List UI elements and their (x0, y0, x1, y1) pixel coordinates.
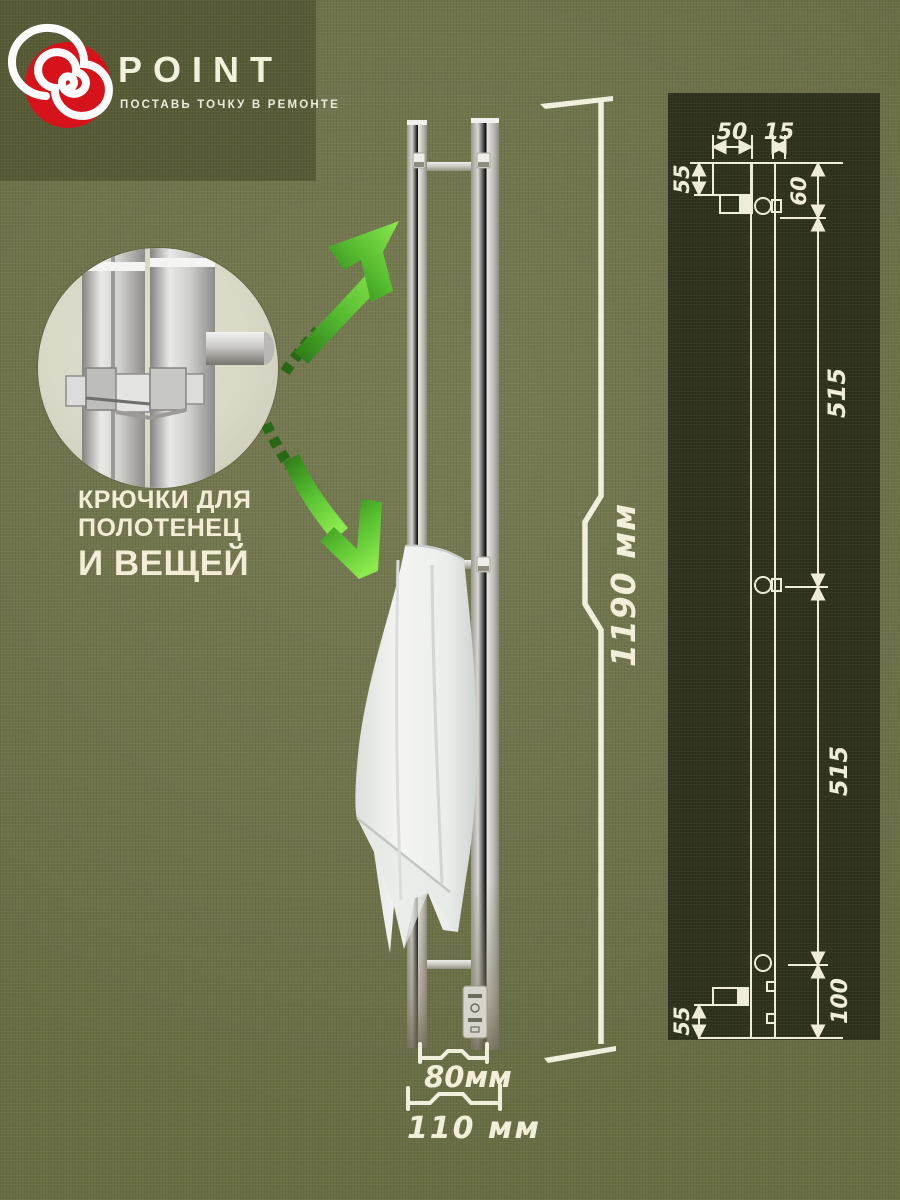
drawing-label-60: 60 (787, 176, 811, 205)
green-arrow-down-icon (266, 424, 382, 579)
callout-line1: КРЮЧКИ ДЛЯ (78, 486, 251, 514)
height-dimension-label: 1190 мм (604, 470, 640, 700)
tech-drawing-panel: 50 15 55 60 515 515 100 55 (668, 93, 880, 1040)
brand-tagline: ПОСТАВЬ ТОЧКУ В РЕМОНТЕ (120, 99, 310, 111)
rail-crossbar-bottom (427, 960, 471, 969)
tech-drawing: 50 15 55 60 515 515 100 55 (668, 93, 880, 1040)
hooks-callout: КРЮЧКИ ДЛЯ ПОЛОТЕНЕЦ И ВЕЩЕЙ (78, 486, 251, 583)
drawing-label-55-bottom: 55 (670, 1006, 694, 1035)
drawing-label-50: 50 (717, 120, 748, 145)
point-spiral-logo-icon (0, 0, 316, 181)
hooks-closeup-inset (38, 248, 278, 488)
drawing-label-515-upper: 515 (823, 368, 851, 418)
callout-line2: ПОЛОТЕНЕЦ (78, 514, 251, 542)
hooks-closeup-art (38, 248, 278, 488)
product-card: POINT ПОСТАВЬ ТОЧКУ В РЕМОНТЕ (0, 0, 900, 1200)
drawing-label-100: 100 (828, 978, 853, 1024)
brand-header: POINT ПОСТАВЬ ТОЧКУ В РЕМОНТЕ (0, 0, 316, 181)
rail-crossbar-top (427, 162, 471, 171)
drawing-label-515-lower: 515 (825, 746, 853, 796)
drawing-label-55-top: 55 (670, 164, 694, 193)
green-arrow-up-icon (285, 221, 399, 372)
towel (355, 545, 477, 953)
brand-name: POINT (118, 52, 308, 88)
rail-control-panel (463, 986, 487, 1038)
callout-line3: И ВЕЩЕЙ (78, 544, 251, 583)
inset-square-hooks (66, 368, 204, 418)
overall-width-label: 110 мм (390, 1111, 558, 1146)
bar-spacing-label: 80мм (398, 1060, 538, 1094)
drawing-label-15: 15 (764, 120, 795, 145)
inset-peg-hook (206, 332, 274, 365)
